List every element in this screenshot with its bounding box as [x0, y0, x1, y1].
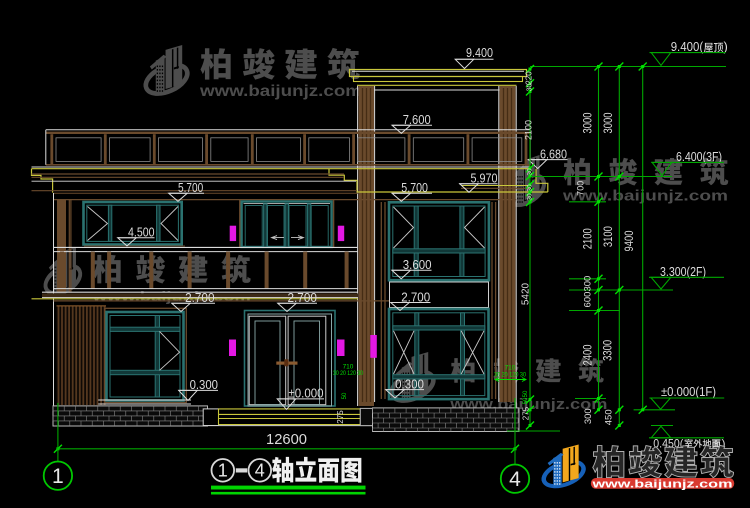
svg-text:30 20 120 30: 30 20 120 30	[333, 371, 364, 377]
svg-text:220: 220	[525, 71, 534, 85]
svg-text:3000: 3000	[603, 113, 615, 134]
svg-text:3300: 3300	[602, 340, 614, 361]
svg-text:30: 30	[527, 168, 534, 176]
svg-text:2100: 2100	[583, 228, 595, 249]
svg-text:6.400(3F): 6.400(3F)	[676, 149, 722, 164]
svg-text:1: 1	[52, 465, 64, 488]
svg-text:4: 4	[509, 468, 521, 491]
svg-text:50: 50	[523, 397, 529, 404]
svg-text:1: 1	[218, 461, 228, 481]
svg-text:710: 710	[505, 365, 516, 372]
svg-text:3000: 3000	[583, 113, 595, 134]
svg-text:450: 450	[603, 409, 614, 425]
svg-text:700: 700	[576, 181, 586, 196]
svg-text:275: 275	[336, 410, 345, 424]
svg-text:9.400: 9.400	[466, 45, 493, 60]
svg-text:±0.000(1F): ±0.000(1F)	[661, 384, 716, 399]
svg-text:www.baijunjz.com: www.baijunjz.com	[199, 83, 362, 100]
svg-text:9.400(: 9.400(	[671, 39, 704, 54]
svg-text:5420: 5420	[521, 282, 532, 305]
svg-text:30: 30	[527, 193, 534, 201]
svg-text:9400: 9400	[624, 231, 636, 252]
svg-text:300: 300	[583, 408, 594, 424]
svg-text:50: 50	[523, 390, 529, 397]
svg-text:5.970: 5.970	[471, 171, 498, 186]
svg-text:4: 4	[255, 461, 265, 481]
svg-text:2400: 2400	[583, 345, 595, 366]
svg-text:12600: 12600	[266, 432, 307, 448]
svg-text:0.300: 0.300	[190, 377, 218, 392]
svg-text:2100: 2100	[524, 120, 534, 140]
svg-text:275: 275	[522, 406, 531, 420]
svg-text:50: 50	[342, 392, 348, 399]
svg-text:±0.000: ±0.000	[289, 386, 324, 401]
svg-text:30: 30	[527, 184, 534, 192]
svg-text:30: 30	[527, 84, 534, 92]
svg-text:710: 710	[343, 364, 354, 371]
svg-text:600: 600	[583, 292, 594, 308]
svg-text:): )	[724, 39, 728, 54]
svg-text:www.baijunjz.com: www.baijunjz.com	[591, 478, 733, 490]
svg-text:300: 300	[583, 276, 594, 292]
svg-text:3100: 3100	[603, 226, 615, 247]
svg-text:6.680: 6.680	[540, 146, 567, 161]
